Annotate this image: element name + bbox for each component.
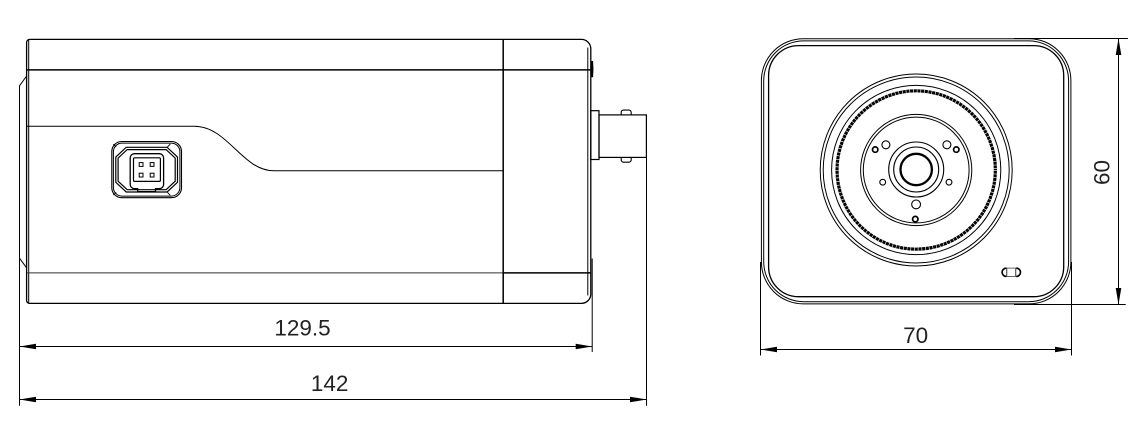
svg-text:142: 142 [311,371,349,396]
svg-text:129.5: 129.5 [274,316,330,341]
svg-text:60: 60 [1090,160,1115,185]
svg-text:70: 70 [903,323,928,348]
